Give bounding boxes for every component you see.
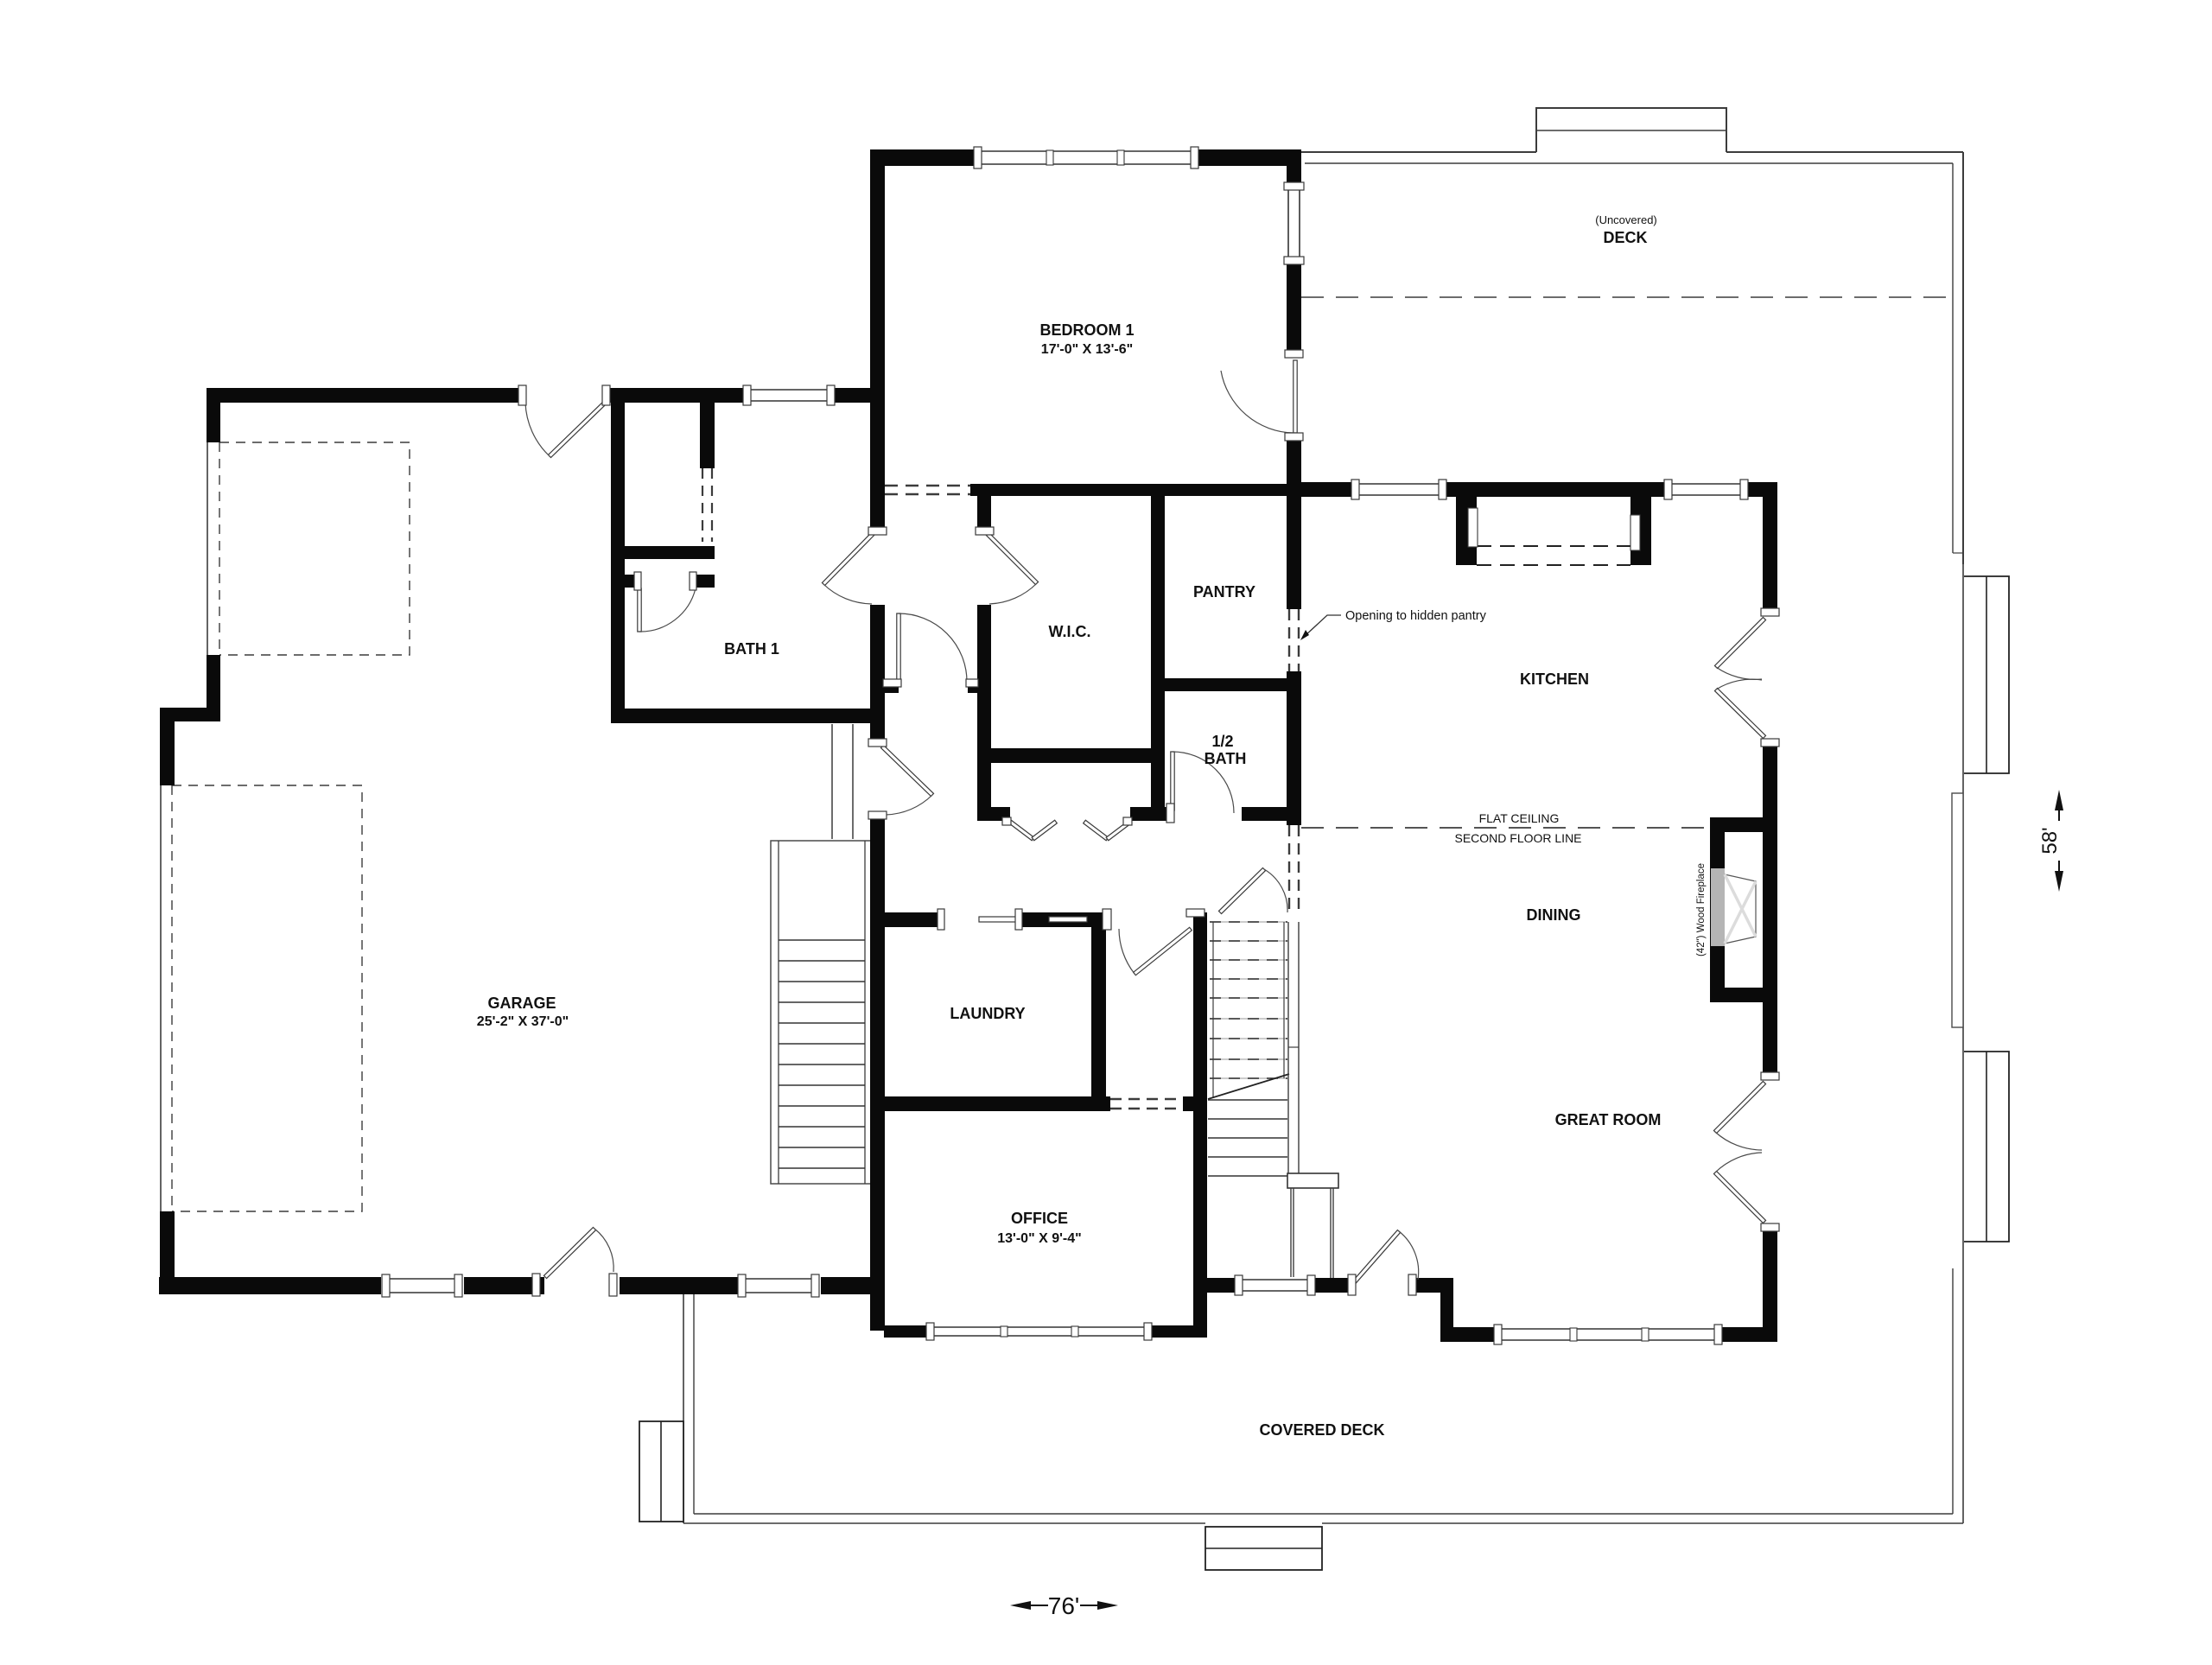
svg-text:58': 58': [2038, 827, 2062, 854]
svg-text:DINING: DINING: [1527, 906, 1581, 924]
svg-text:1/2: 1/2: [1211, 733, 1233, 750]
svg-text:FLAT CEILING: FLAT CEILING: [1479, 811, 1560, 825]
svg-text:LAUNDRY: LAUNDRY: [950, 1005, 1025, 1022]
svg-text:W.I.C.: W.I.C.: [1049, 623, 1091, 640]
svg-text:BEDROOM 1: BEDROOM 1: [1039, 321, 1134, 339]
svg-text:Opening to hidden pantry: Opening to hidden pantry: [1345, 609, 1487, 623]
svg-text:(Uncovered): (Uncovered): [1595, 213, 1657, 226]
svg-text:OFFICE: OFFICE: [1011, 1210, 1068, 1227]
svg-text:76': 76': [1048, 1592, 1080, 1619]
svg-text:KITCHEN: KITCHEN: [1520, 670, 1589, 688]
svg-text:DECK: DECK: [1603, 229, 1647, 246]
svg-text:25'-2" X 37'-0": 25'-2" X 37'-0": [477, 1014, 569, 1029]
svg-text:BATH 1: BATH 1: [724, 640, 779, 658]
svg-text:13'-0" X 9'-4": 13'-0" X 9'-4": [997, 1231, 1082, 1246]
svg-text:GREAT ROOM: GREAT ROOM: [1555, 1111, 1662, 1128]
svg-text:(42") Wood Fireplace: (42") Wood Fireplace: [1696, 863, 1707, 956]
svg-text:GARAGE: GARAGE: [487, 995, 556, 1012]
svg-text:COVERED DECK: COVERED DECK: [1259, 1421, 1384, 1439]
svg-text:PANTRY: PANTRY: [1193, 583, 1255, 601]
svg-text:17'-0" X 13'-6": 17'-0" X 13'-6": [1041, 342, 1133, 357]
svg-text:BATH: BATH: [1205, 750, 1247, 767]
svg-text:SECOND FLOOR LINE: SECOND FLOOR LINE: [1454, 831, 1581, 845]
